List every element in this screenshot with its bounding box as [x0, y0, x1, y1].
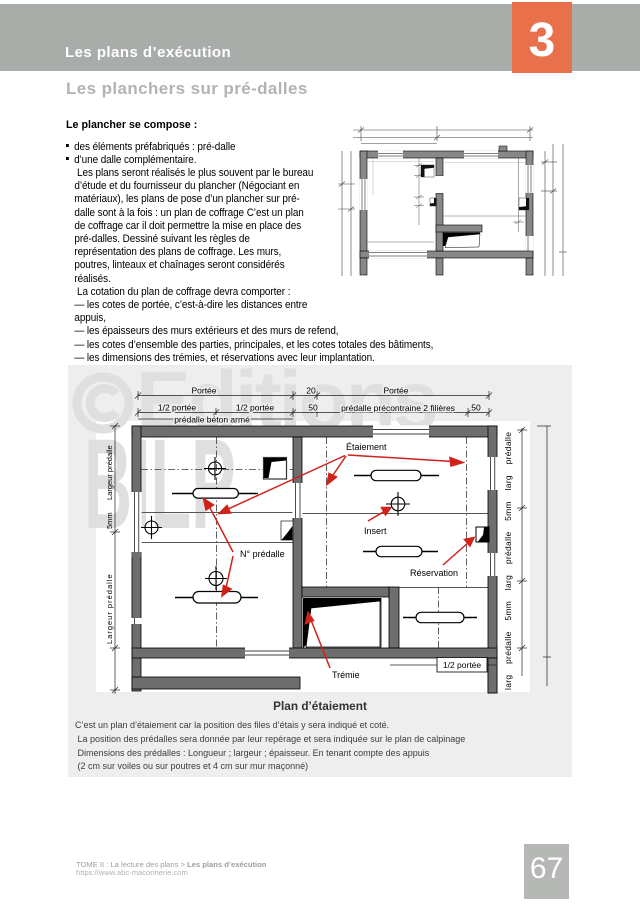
svg-text:Trémie: Trémie [332, 670, 360, 680]
svg-text:Largeur prédalle: Largeur prédalle [105, 573, 114, 644]
svg-text:Portée: Portée [383, 386, 408, 396]
svg-text:prédalle béton armé: prédalle béton armé [174, 415, 250, 425]
svg-text:1/2 portée: 1/2 portée [158, 403, 197, 413]
svg-text:Insert: Insert [364, 526, 387, 536]
svg-text:Largeur prédalle: Largeur prédalle [105, 445, 114, 500]
svg-text:Réservation: Réservation [410, 568, 458, 578]
svg-text:5mm: 5mm [105, 512, 114, 529]
svg-text:20: 20 [306, 386, 316, 396]
svg-text:50: 50 [308, 403, 318, 413]
svg-text:Portée: Portée [191, 386, 216, 396]
svg-text:Étaiement: Étaiement [346, 442, 387, 452]
svg-text:1/2 portée: 1/2 portée [443, 660, 482, 670]
svg-text:N° prédalle: N° prédalle [240, 549, 285, 559]
svg-text:larg prédalle 5mm larg prédall: larg prédalle 5mm larg prédalle 5mm larg… [503, 432, 513, 690]
svg-text:50: 50 [471, 403, 481, 413]
svg-text:1/2 portée: 1/2 portée [236, 403, 275, 413]
svg-text:prédalle précontraine 2 filièr: prédalle précontraine 2 filières [341, 403, 455, 413]
